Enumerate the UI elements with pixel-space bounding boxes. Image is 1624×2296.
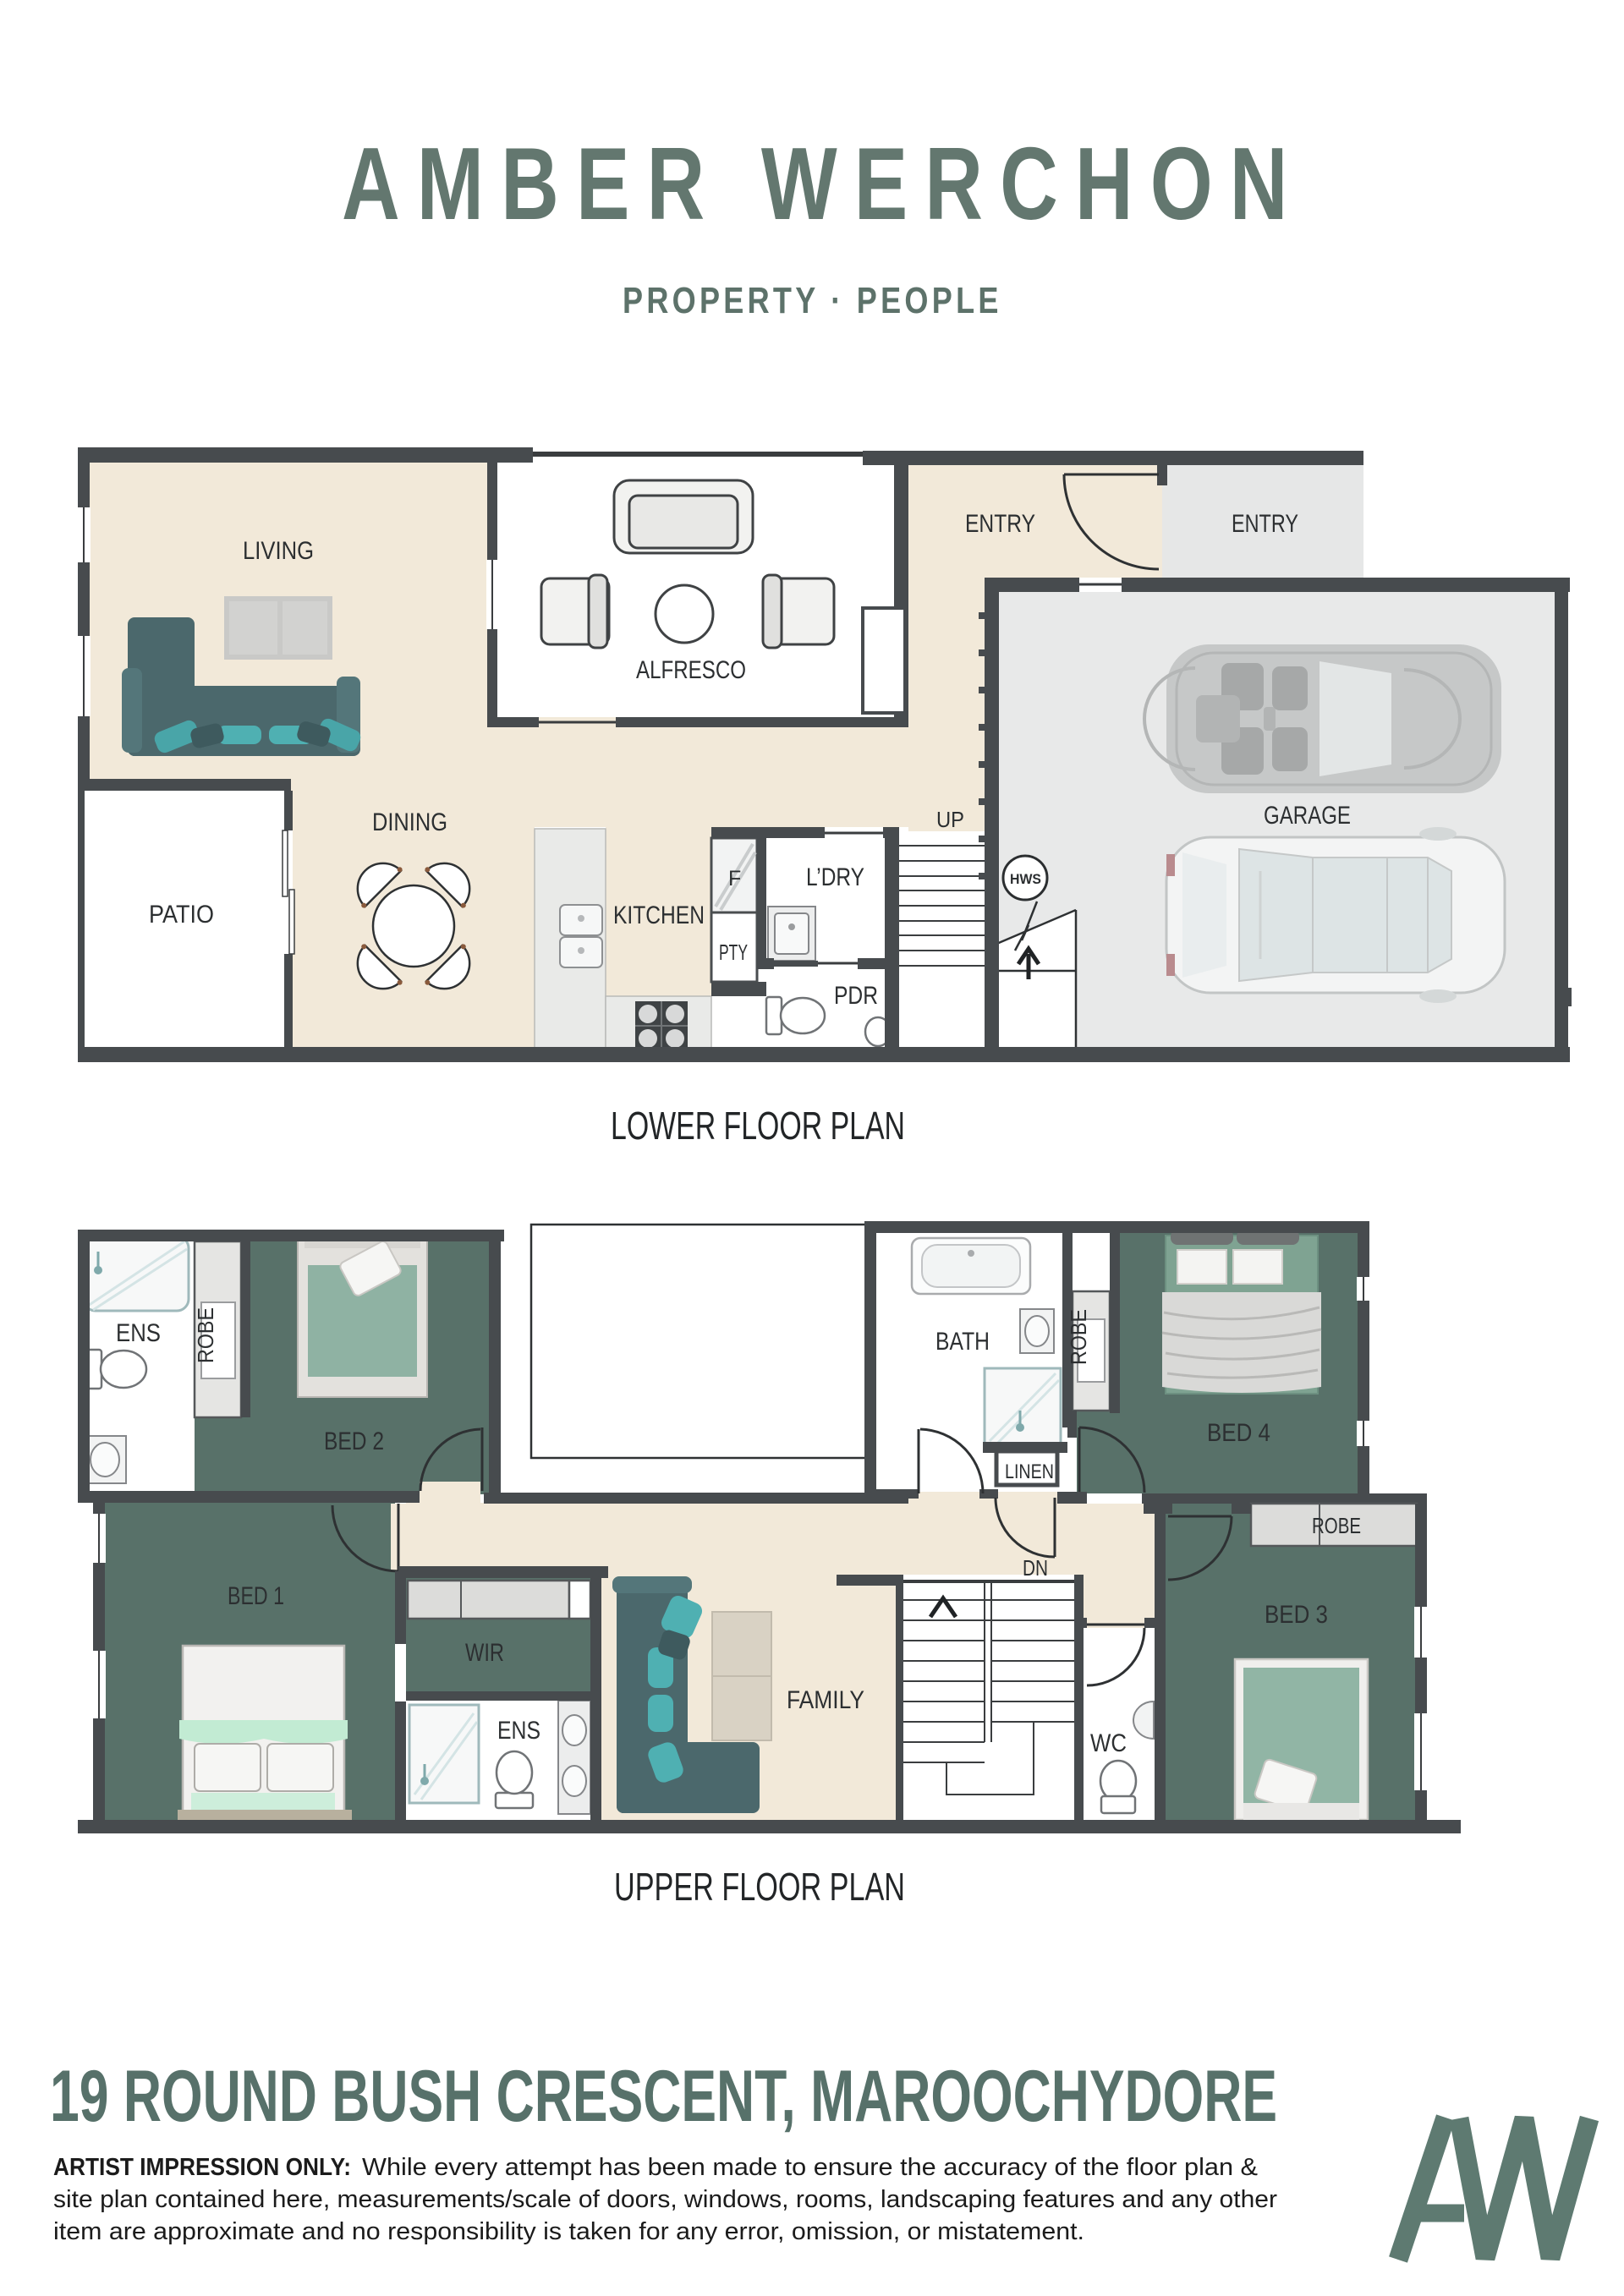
svg-text:ROBE: ROBE [1312,1513,1361,1538]
svg-text:PDR: PDR [834,982,878,1010]
svg-text:BED 2: BED 2 [324,1427,384,1455]
svg-text:LINEN: LINEN [1005,1460,1054,1483]
svg-text:DINING: DINING [372,808,447,836]
svg-text:ENTRY: ENTRY [965,510,1035,538]
svg-text:GARAGE: GARAGE [1264,802,1351,830]
svg-text:PTY: PTY [719,940,748,965]
svg-text:WIR: WIR [465,1639,504,1667]
svg-text:BED 4: BED 4 [1207,1419,1270,1447]
svg-text:ROBE: ROBE [1066,1309,1091,1365]
svg-text:ENS: ENS [116,1319,161,1347]
svg-text:HWS: HWS [1010,871,1041,887]
svg-text:While every attempt has been m: While every attempt has been made to ens… [362,2154,1258,2181]
svg-text:BED 3: BED 3 [1265,1601,1328,1629]
svg-text:UP: UP [936,807,964,832]
svg-text:BED 1: BED 1 [228,1582,284,1610]
svg-text:UPPER FLOOR PLAN: UPPER FLOOR PLAN [614,1865,905,1909]
svg-text:L’DRY: L’DRY [806,863,864,891]
svg-text:ARTIST IMPRESSION ONLY:: ARTIST IMPRESSION ONLY: [53,2154,351,2181]
svg-text:FAMILY: FAMILY [787,1686,864,1714]
svg-text:WC: WC [1090,1729,1127,1757]
svg-text:PATIO: PATIO [149,901,214,929]
svg-text:19 ROUND BUSH CRESCENT, MAROOC: 19 ROUND BUSH CRESCENT, MAROOCHYDORE [50,2056,1277,2137]
svg-text:DN: DN [1023,1555,1048,1581]
svg-text:ROBE: ROBE [193,1307,218,1363]
svg-text:ALFRESCO: ALFRESCO [636,656,746,684]
svg-text:LOWER FLOOR PLAN: LOWER FLOOR PLAN [611,1104,905,1148]
svg-text:AMBER WERCHON: AMBER WERCHON [342,127,1306,242]
svg-text:F: F [728,867,741,890]
svg-text:ENTRY: ENTRY [1232,510,1298,538]
svg-text:ENS: ENS [497,1717,540,1745]
svg-text:KITCHEN: KITCHEN [613,901,705,929]
svg-text:BATH: BATH [935,1328,990,1356]
svg-text:item are approximate and no re: item are approximate and no responsibili… [53,2218,1084,2245]
svg-text:site plan contained here, meas: site plan contained here, measurements/s… [53,2186,1277,2213]
svg-text:LIVING: LIVING [243,537,314,565]
svg-text:PROPERTY · PEOPLE: PROPERTY · PEOPLE [623,280,1004,321]
